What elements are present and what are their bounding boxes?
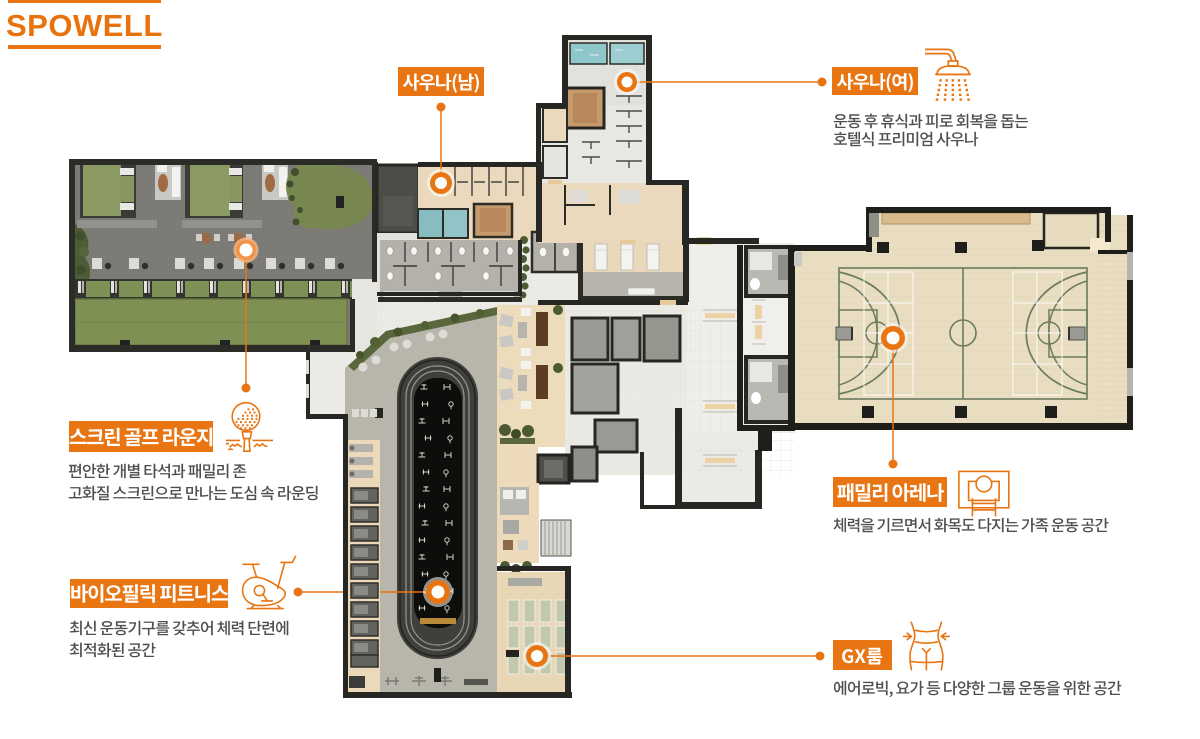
svg-text:SPOWELL: SPOWELL (6, 8, 163, 43)
